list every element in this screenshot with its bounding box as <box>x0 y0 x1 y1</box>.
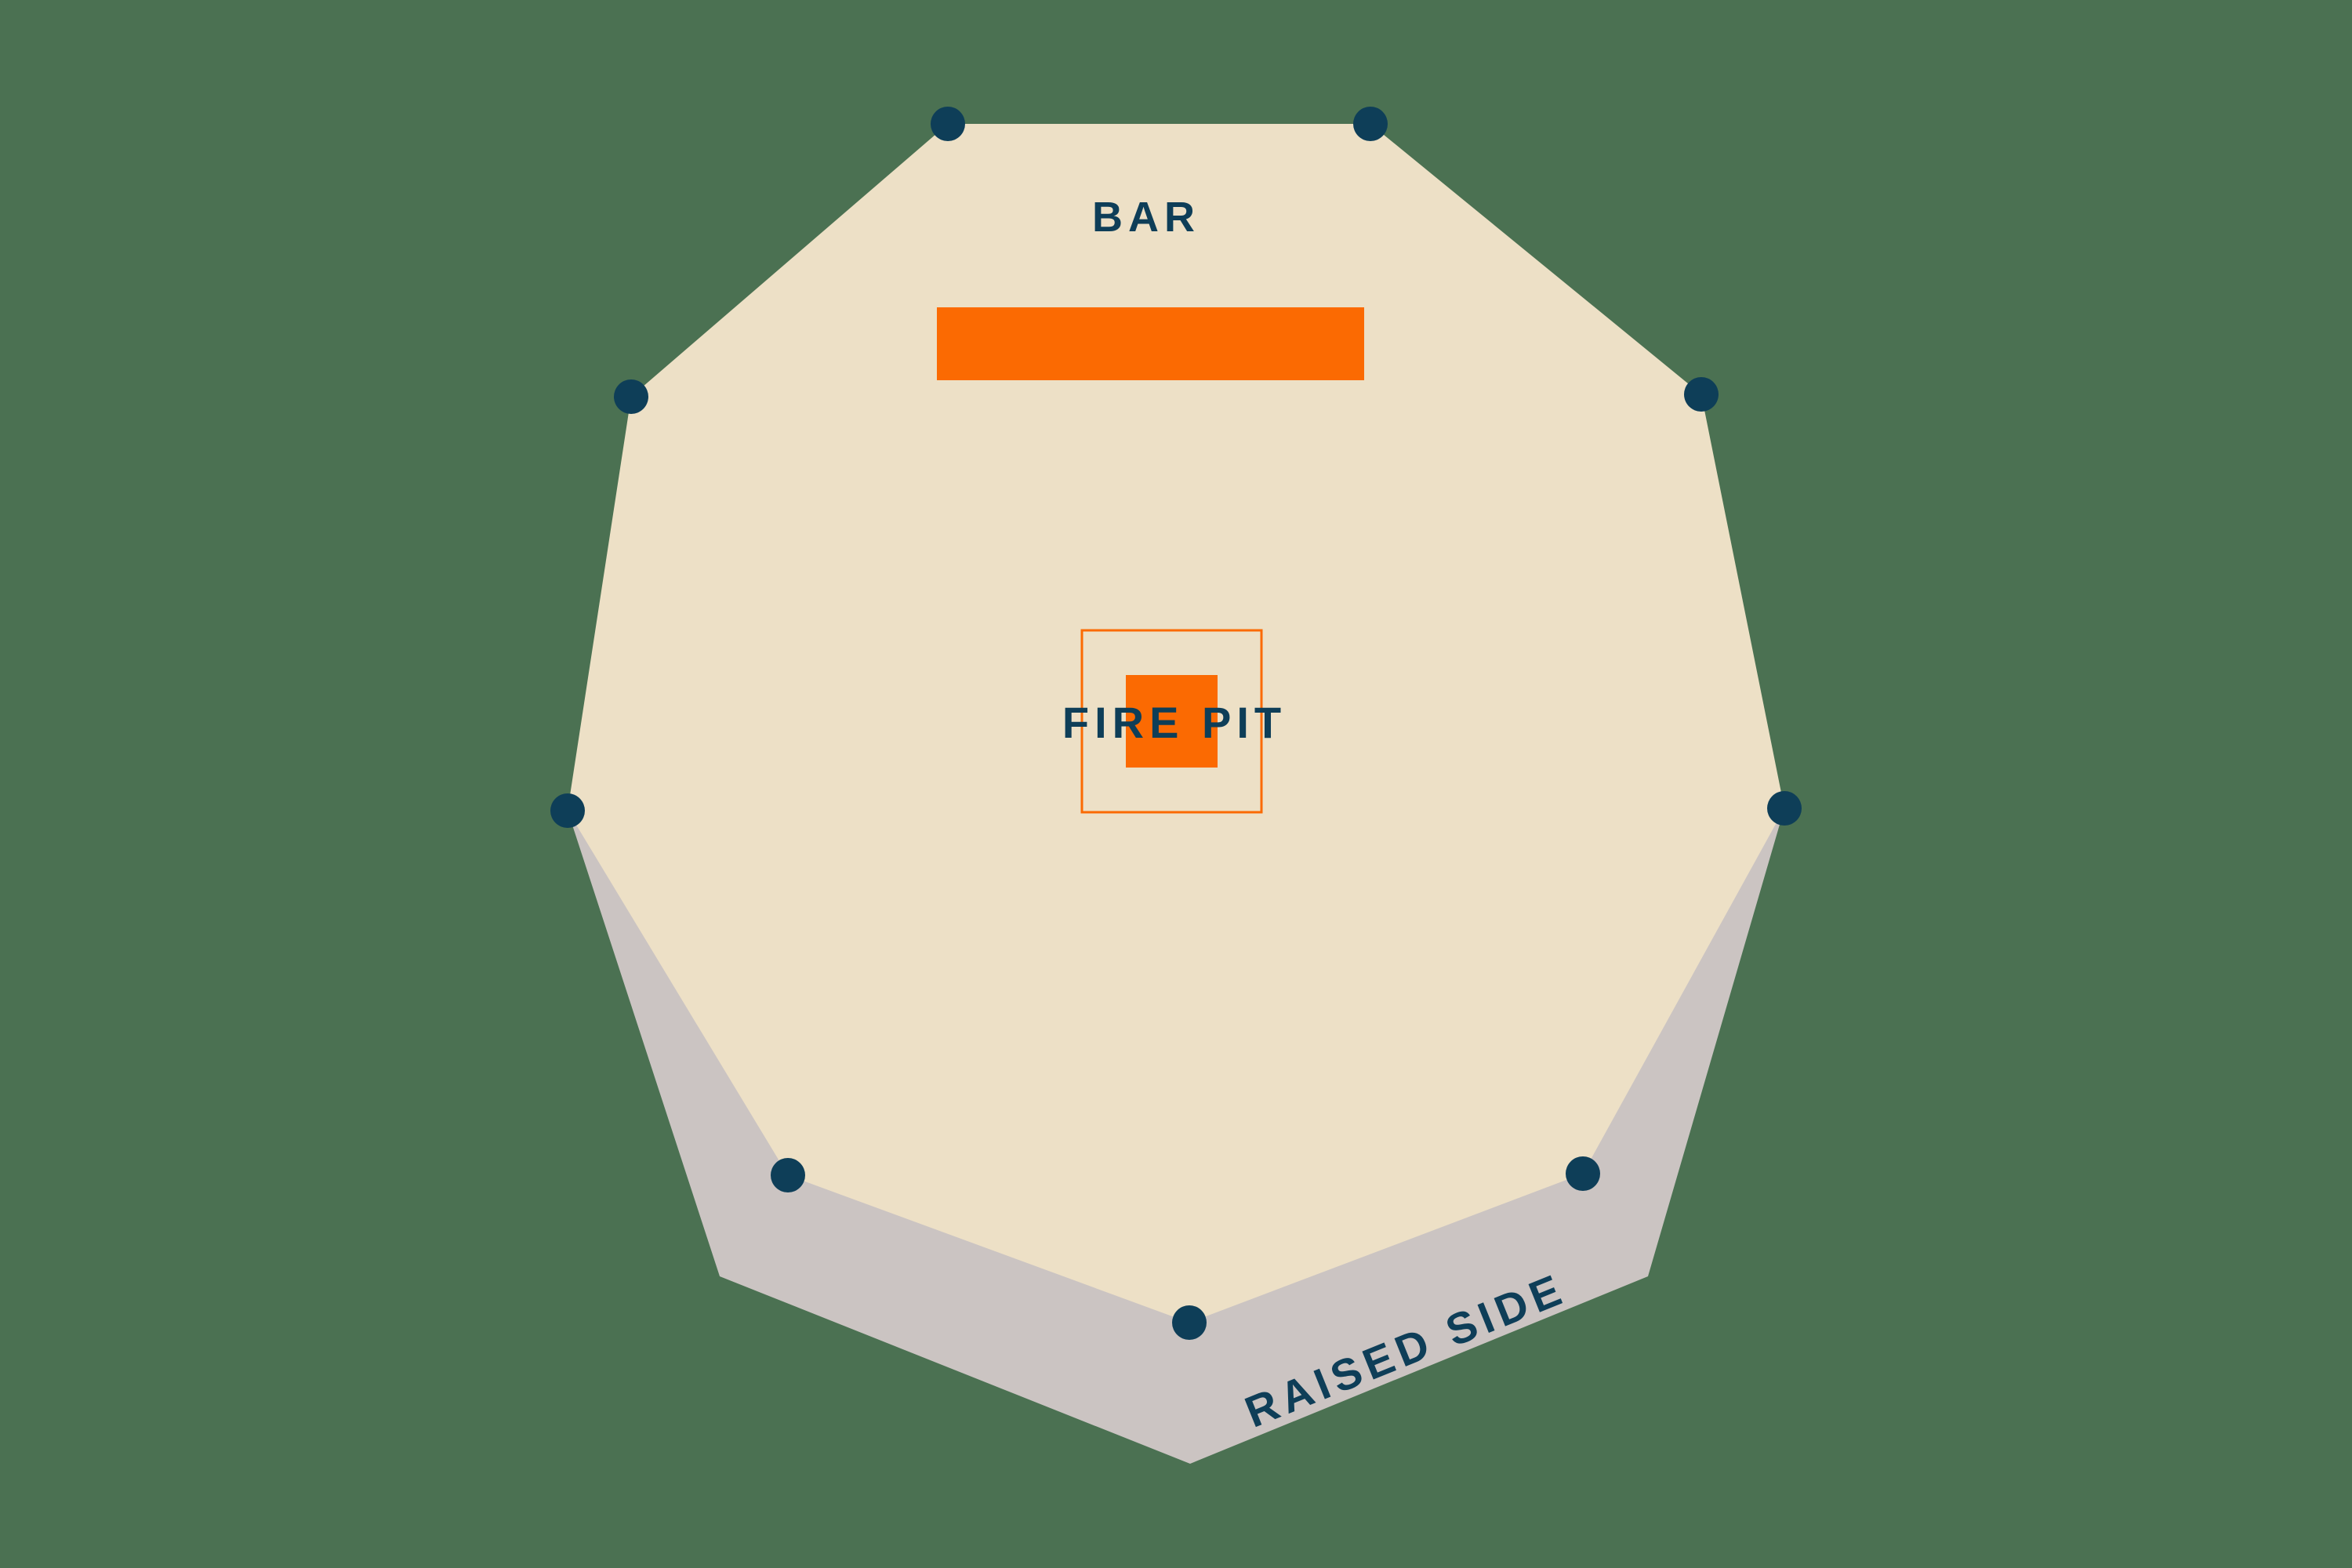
tent-floor-plan: BARFIRE PITRAISED SIDE <box>0 0 2352 1568</box>
tent-pole-dot <box>771 1158 805 1192</box>
tent-pole-dot <box>1767 791 1802 826</box>
floor-plan-canvas: BARFIRE PITRAISED SIDE <box>0 0 2352 1568</box>
tent-pole-dot <box>614 379 648 414</box>
bar-counter <box>937 307 1364 380</box>
tent-pole-dot <box>550 793 585 828</box>
tent-pole-dot <box>931 107 965 141</box>
tent-pole-dot <box>1353 107 1388 141</box>
bar-label: BAR <box>1092 194 1200 241</box>
tent-pole-dot <box>1172 1305 1207 1340</box>
tent-pole-dot <box>1684 377 1719 412</box>
tent-pole-dot <box>1566 1156 1600 1191</box>
fire-pit-label: FIRE PIT <box>1062 698 1287 747</box>
